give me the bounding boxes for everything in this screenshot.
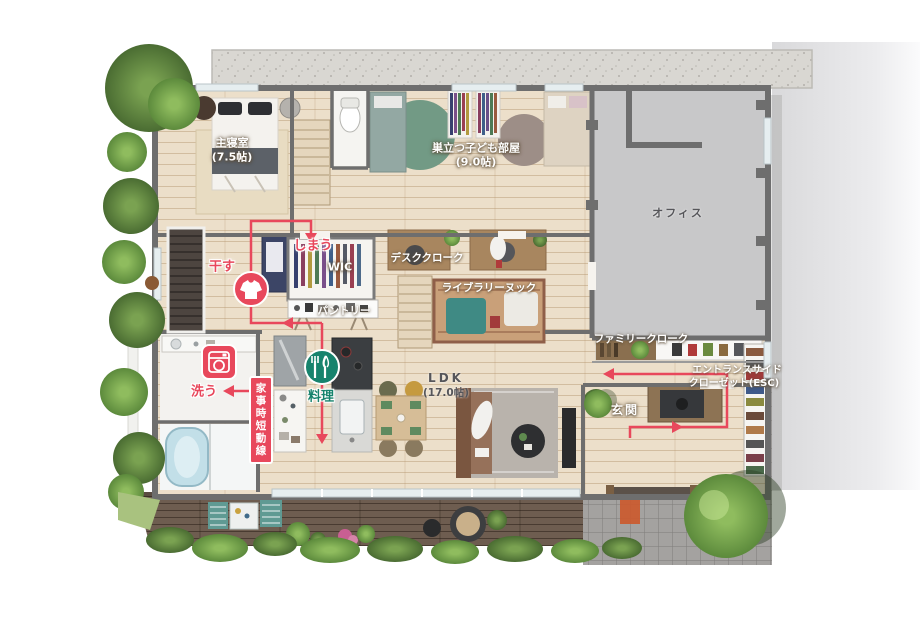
stairs-upper [293, 120, 330, 205]
pantry-label: パントリー [317, 306, 370, 317]
gravel-path [212, 50, 812, 88]
wash-flow-label: 洗う [191, 386, 217, 399]
stairs-lower [398, 276, 432, 348]
sofa-back [456, 388, 471, 478]
bathroom [166, 424, 210, 490]
master-bedroom-label: 主寝室 [216, 138, 249, 149]
wic-label: WIC [328, 262, 352, 273]
ldk-label: LDK [428, 372, 464, 384]
cook-flow-label: 料理 [308, 391, 334, 404]
ldk-size: (17.0帖) [423, 388, 469, 399]
back-counter [274, 390, 306, 452]
shortcut-flow-label: 家事時短動線 [254, 383, 269, 458]
desk-cloak-label: デスククローク [390, 253, 463, 264]
kids-room-label: 巣立つ子ども部屋 [432, 143, 520, 154]
master-bedroom-size: (7.5帖) [212, 152, 253, 163]
tv-board [562, 408, 576, 468]
cutlery-icon [305, 350, 339, 384]
library-nook-label: ライブラリーヌック [442, 283, 537, 294]
entrance-side-closet-label-line1: エントランスサイド [692, 366, 782, 376]
shirt-icon [234, 272, 268, 306]
washing-machine-icon [202, 345, 236, 379]
entrance-label: 玄関 [611, 404, 639, 416]
family-cloak-label: ファミリークローク [594, 334, 689, 345]
entrance-side-closet-label-line2: クローゼット(ESC) [689, 379, 780, 389]
round-table [511, 424, 545, 458]
floor-plan-illustration: 主寝室 (7.5帖) 巣立つ子ども部屋 (9.0帖) オフィス デスククローク … [0, 0, 920, 620]
kids-room-size: (9.0帖) [456, 157, 497, 168]
entrance-side-closet-shelf [744, 344, 766, 476]
store-flow-label: しまう [293, 240, 332, 253]
rug [498, 114, 550, 166]
toilet-room [340, 98, 360, 132]
office-label: オフィス [652, 208, 704, 219]
neighbor-area [772, 42, 920, 490]
floor-plan-canvas [0, 0, 920, 620]
dry-flow-label: 干す [209, 261, 235, 274]
